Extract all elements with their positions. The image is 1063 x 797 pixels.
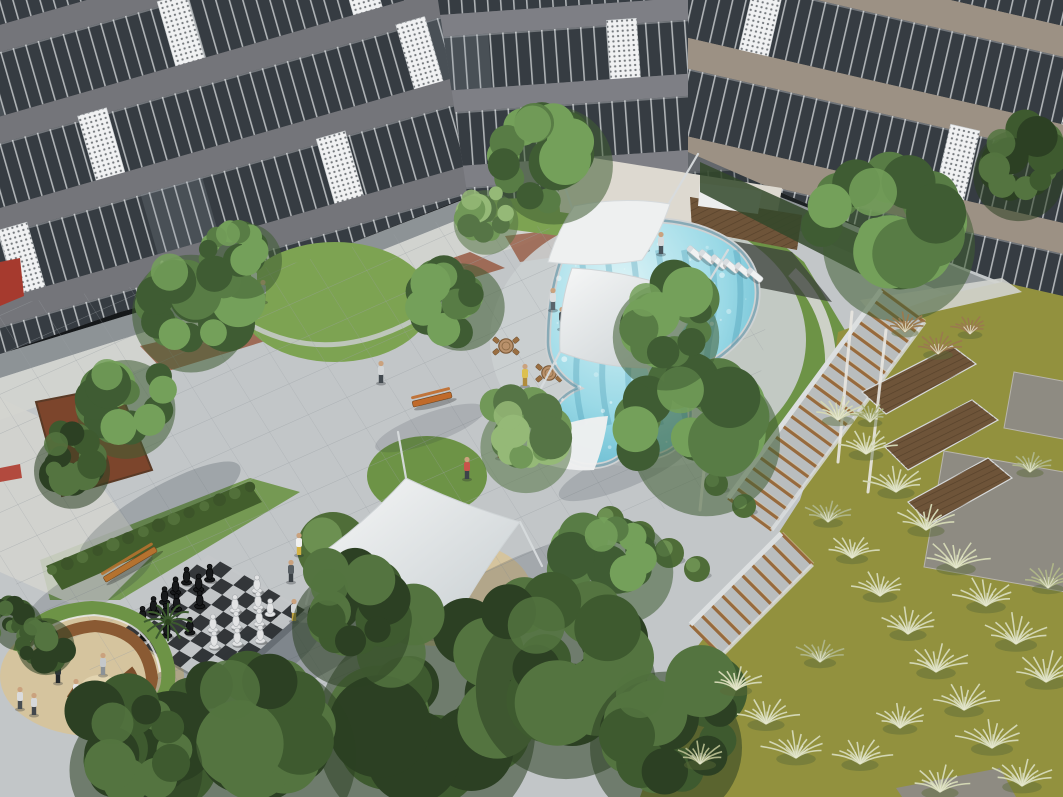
piece-head — [173, 577, 178, 582]
tree-foliage — [46, 462, 62, 478]
piece-head — [258, 625, 263, 630]
tree-foliage — [133, 404, 165, 436]
tree-highlight — [24, 618, 42, 636]
person-head — [291, 599, 296, 604]
piece-head — [196, 574, 201, 579]
tree-highlight — [849, 168, 897, 216]
tree-highlight — [508, 597, 565, 654]
tree-highlight — [987, 129, 1016, 158]
piece-head — [212, 631, 217, 636]
person-legs — [32, 706, 36, 715]
bush-highlight — [686, 558, 700, 572]
hedge-shrub — [122, 532, 134, 544]
person-head — [100, 653, 105, 658]
person-head — [17, 687, 22, 692]
person-head — [73, 679, 78, 684]
water-sparkle — [556, 276, 561, 281]
tree-foliage — [516, 182, 543, 209]
person-head — [378, 361, 383, 366]
tree-foliage — [1030, 169, 1052, 191]
piece-body — [234, 632, 241, 644]
piece-body — [150, 600, 157, 612]
tree-highlight — [616, 670, 664, 718]
piece-head — [151, 596, 156, 601]
hedge-shrub — [47, 565, 57, 575]
piece-body — [196, 594, 203, 606]
water-sparkle — [720, 319, 722, 321]
tree-foliage — [647, 336, 679, 368]
tree-foliage — [677, 328, 705, 356]
person-legs — [523, 377, 527, 386]
hedge-shrub — [213, 493, 226, 506]
tree-highlight — [216, 222, 240, 246]
person-legs — [551, 301, 555, 310]
tree-foliage — [509, 445, 533, 469]
tree-foliage — [149, 376, 177, 404]
piece-body — [256, 612, 263, 624]
hedge-shrub — [61, 557, 74, 570]
piece-body — [172, 581, 179, 593]
tree-foliage — [642, 748, 688, 794]
tree — [292, 548, 412, 688]
water-sparkle — [610, 401, 613, 404]
piece-head — [268, 599, 273, 604]
tree-highlight — [514, 106, 551, 143]
palm-center — [165, 619, 171, 625]
tree-foliage — [84, 739, 136, 791]
water-sparkle — [561, 356, 567, 362]
piece-head — [254, 575, 259, 580]
piece-body — [206, 568, 213, 580]
tree-foliage — [100, 409, 136, 445]
person-head — [288, 560, 293, 565]
tree-highlight — [430, 263, 458, 291]
piece-head — [210, 614, 215, 619]
piece-body — [195, 578, 202, 590]
person-legs — [379, 374, 383, 383]
tree-foliage — [364, 616, 390, 642]
person-head — [658, 232, 663, 237]
tree-foliage — [131, 695, 161, 725]
tree-foliage — [20, 646, 34, 660]
piece-head — [197, 591, 202, 596]
tree-foliage — [515, 660, 601, 746]
hedge-shrub — [138, 526, 149, 537]
piece-body — [211, 635, 218, 647]
piece-body — [161, 590, 168, 602]
tree-highlight — [585, 519, 618, 552]
hedge-shrub — [152, 519, 166, 533]
piece-body — [257, 629, 264, 641]
water-sparkle — [624, 268, 626, 270]
courtyard-scene — [0, 0, 1063, 797]
panel-perforation — [606, 18, 640, 84]
piece-head — [234, 611, 239, 616]
tree-foliage — [344, 554, 395, 605]
piece-head — [207, 564, 212, 569]
tree-foliage — [497, 205, 513, 221]
person-head — [296, 533, 301, 538]
tree-foliage — [230, 244, 261, 275]
water-sparkle — [557, 322, 559, 324]
hedge-shrub — [229, 488, 241, 500]
tree-foliage — [488, 148, 520, 180]
hedge-shrub — [106, 538, 119, 551]
piece-body — [232, 598, 239, 610]
rendering-canvas — [0, 0, 1063, 797]
person-head — [522, 364, 527, 369]
water-sparkle — [689, 259, 691, 261]
hedge-shrub — [245, 482, 255, 492]
tree-foliage — [159, 318, 191, 350]
person-torso — [100, 658, 106, 667]
water-sparkle — [706, 246, 709, 249]
tree-foliage — [77, 450, 106, 479]
hedge-shrub — [92, 546, 102, 556]
hedge-shrub — [77, 551, 89, 563]
tree-foliage — [196, 256, 232, 292]
tree-foliage — [808, 184, 852, 228]
water-sparkle — [719, 272, 725, 278]
person-legs — [659, 245, 663, 254]
piece-head — [140, 606, 145, 611]
tree-highlight — [44, 432, 68, 456]
person-torso — [464, 462, 470, 471]
person-head — [464, 457, 469, 462]
person-legs — [101, 666, 105, 675]
tree-foliage — [663, 267, 713, 317]
hedge-shrub — [199, 501, 209, 511]
hedge-shrub — [168, 513, 180, 525]
tree-highlight — [461, 190, 481, 210]
tree-foliage — [610, 555, 647, 592]
tree-highlight — [91, 359, 122, 390]
water-sparkle — [726, 309, 731, 314]
person-legs — [465, 470, 469, 479]
tree-highlight — [494, 401, 523, 430]
tree-foliage — [458, 282, 483, 307]
table-top — [499, 339, 513, 353]
tree-foliage — [489, 186, 503, 200]
piece-body — [233, 615, 240, 627]
tree-highlight — [629, 283, 663, 317]
person-torso — [296, 538, 302, 547]
tree-highlight — [92, 703, 134, 745]
piece-head — [257, 608, 262, 613]
piece-head — [184, 567, 189, 572]
tree-foliage — [335, 625, 366, 656]
tree-foliage — [574, 595, 641, 662]
person-torso — [17, 692, 23, 701]
piece-head — [256, 592, 261, 597]
tree-foliage — [613, 406, 659, 452]
person-torso — [378, 366, 384, 375]
tree-foliage — [529, 417, 572, 460]
piece-body — [210, 618, 217, 630]
tree-foliage — [200, 319, 227, 346]
piece-head — [235, 628, 240, 633]
water-sparkle — [745, 298, 747, 300]
water-sparkle — [601, 409, 605, 413]
person-head — [550, 288, 555, 293]
piece-body — [183, 571, 190, 583]
piece-head — [162, 587, 167, 592]
person-legs — [297, 546, 301, 555]
hedge-shrub — [183, 507, 194, 518]
person-torso — [288, 565, 294, 574]
piece-body — [255, 595, 262, 607]
person-legs — [18, 700, 22, 709]
piece-head — [232, 595, 237, 600]
water-sparkle — [575, 265, 577, 267]
tree-foliage — [152, 744, 190, 782]
water-sparkle — [594, 372, 599, 377]
tree-foliage — [539, 133, 591, 185]
tree-foliage — [199, 240, 218, 259]
tree-foliage — [906, 184, 966, 244]
piece-body — [254, 579, 261, 591]
person-head — [31, 693, 36, 698]
water-sparkle — [608, 445, 612, 449]
person-torso — [550, 293, 556, 302]
tree-highlight — [311, 569, 348, 606]
tree-highlight — [200, 660, 260, 720]
tree-foliage — [457, 214, 480, 237]
person-torso — [31, 698, 37, 707]
person-legs — [56, 674, 60, 683]
water-sparkle — [577, 385, 581, 389]
tree-foliage — [1017, 116, 1058, 157]
piece-body — [267, 602, 274, 614]
tree-highlight — [151, 254, 188, 291]
person-torso — [522, 369, 528, 378]
piece-head — [174, 594, 179, 599]
tree-foliage — [699, 367, 760, 428]
person-torso — [658, 237, 664, 246]
person-legs — [289, 573, 293, 582]
